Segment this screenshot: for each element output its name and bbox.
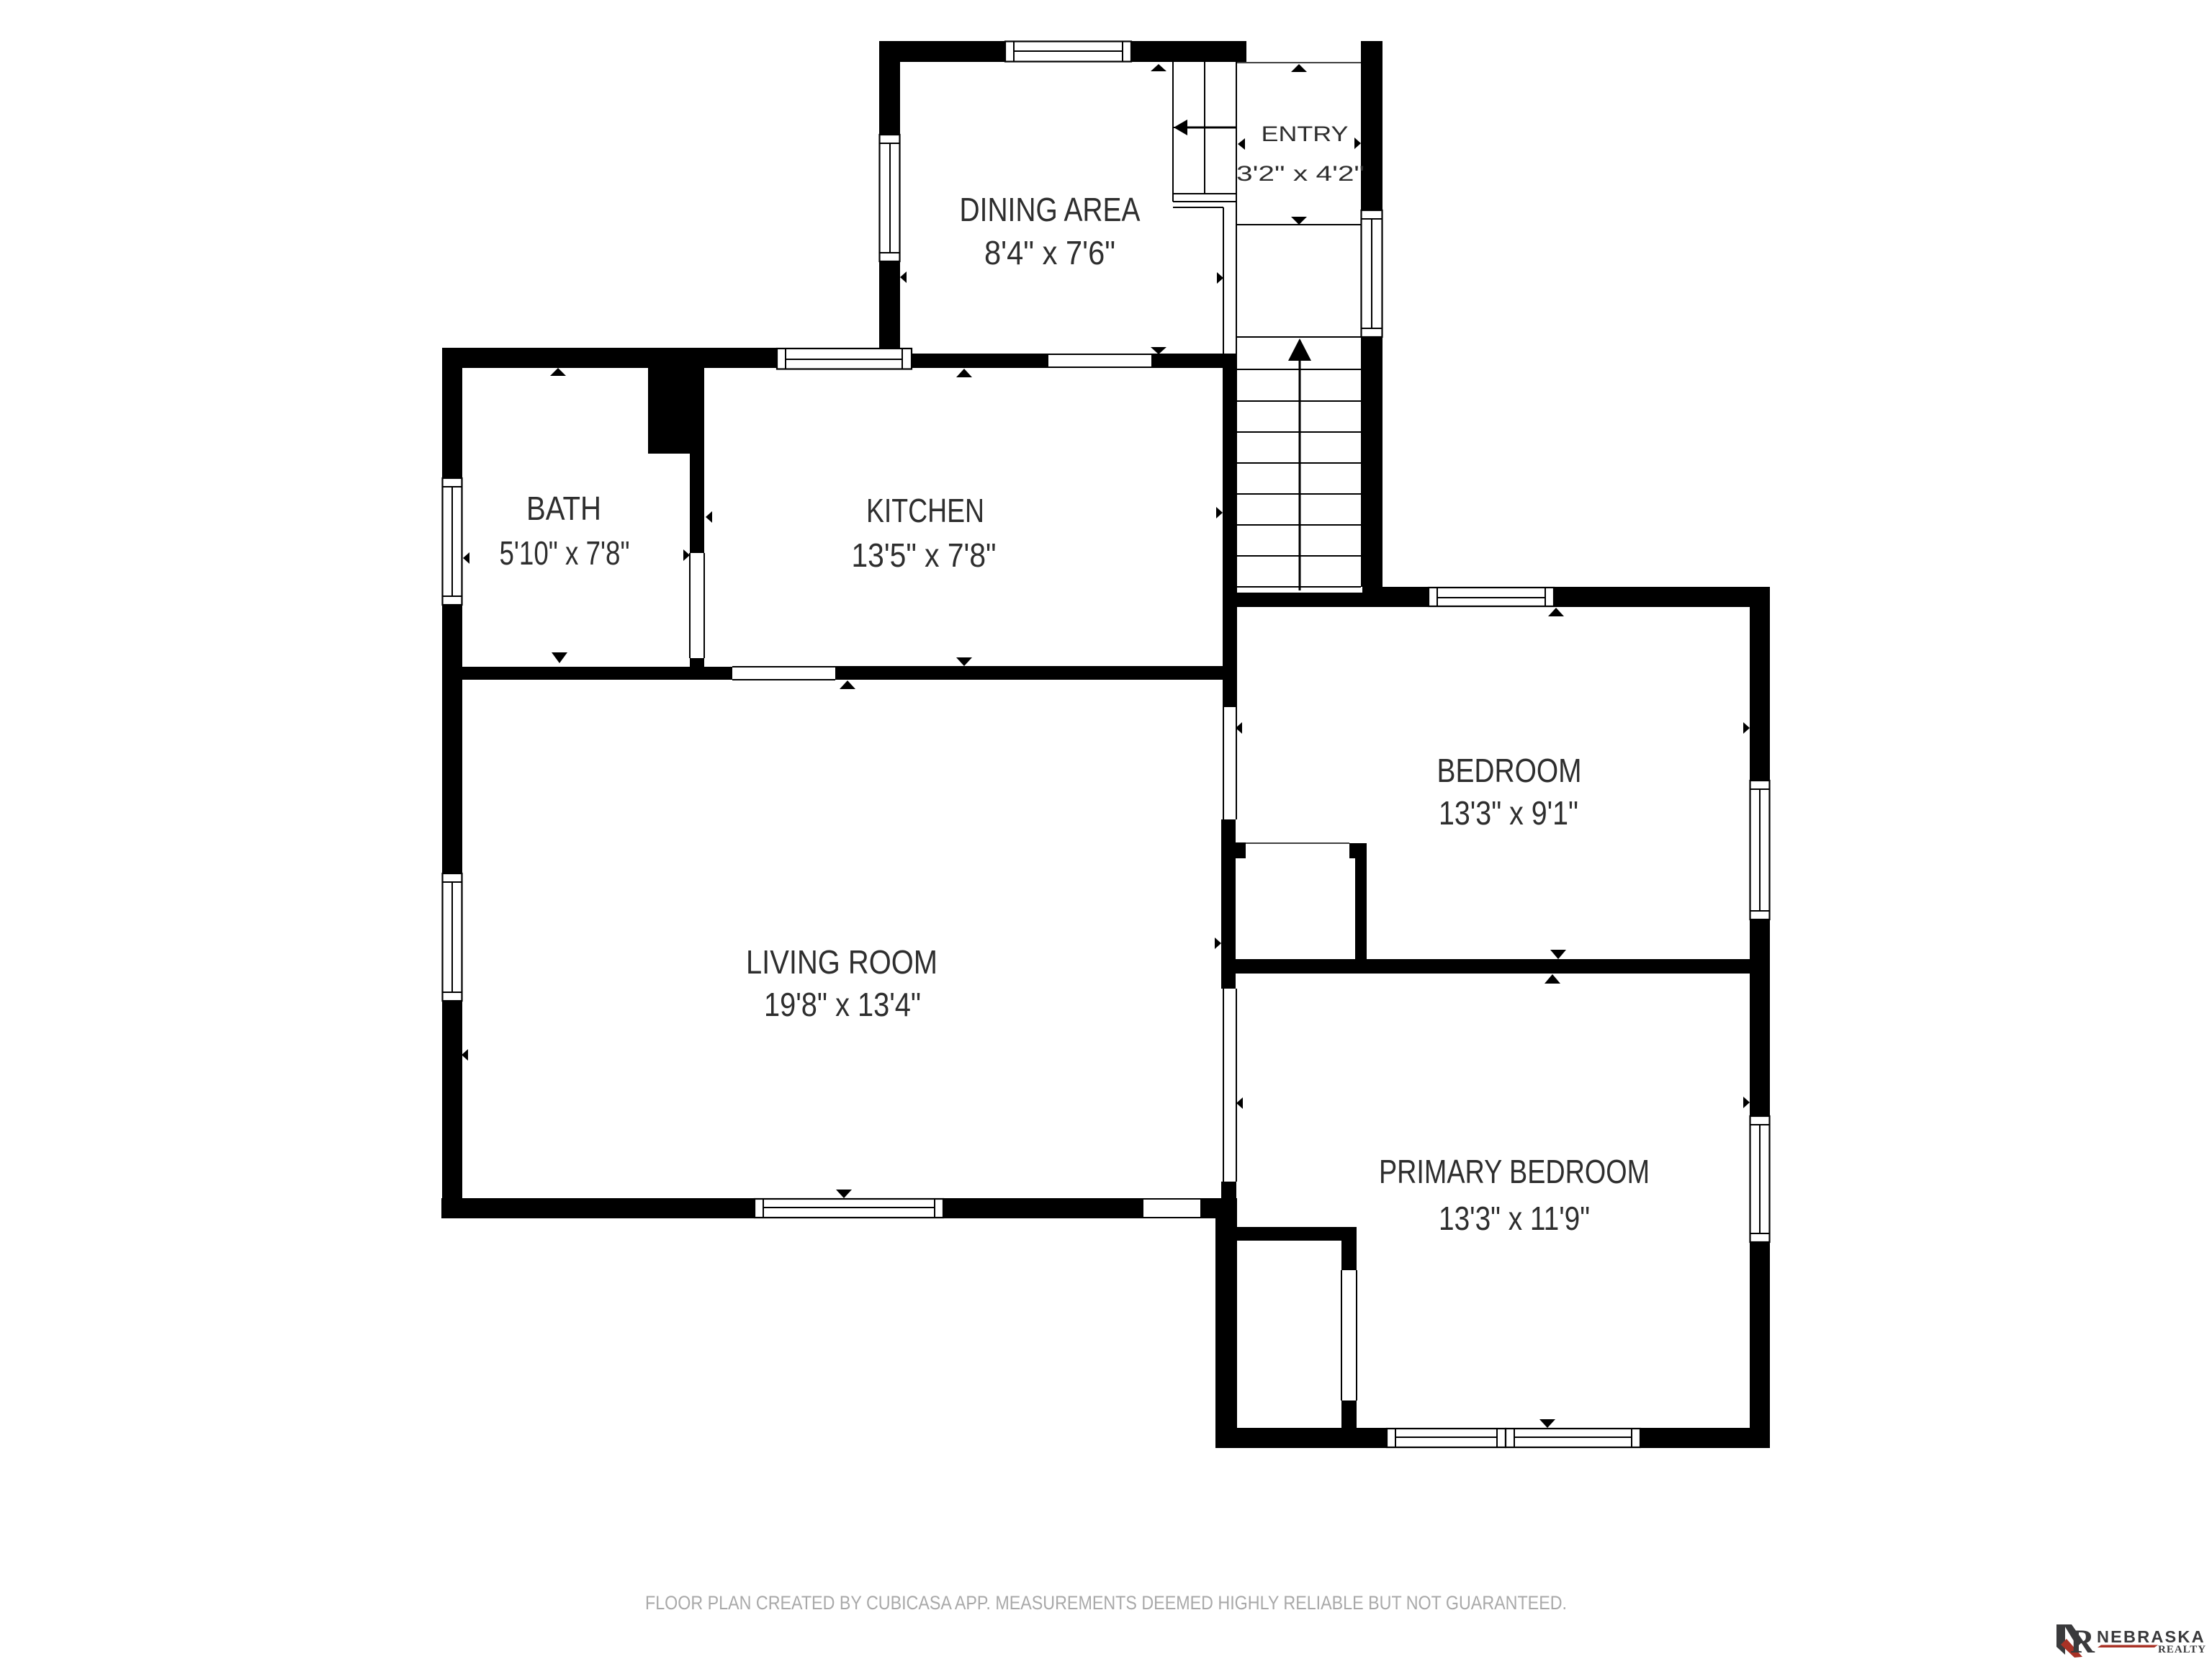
svg-text:13'3" x 9'1": 13'3" x 9'1" xyxy=(1439,794,1578,832)
svg-text:19'8" x 13'4": 19'8" x 13'4" xyxy=(764,986,921,1023)
svg-text:REALTY: REALTY xyxy=(2158,1644,2206,1655)
svg-text:KITCHEN: KITCHEN xyxy=(866,492,984,529)
svg-text:PRIMARY BEDROOM: PRIMARY BEDROOM xyxy=(1379,1153,1650,1190)
svg-text:FLOOR PLAN CREATED BY CUBICASA: FLOOR PLAN CREATED BY CUBICASA APP. MEAS… xyxy=(645,1592,1567,1614)
svg-text:13'5" x 7'8": 13'5" x 7'8" xyxy=(852,536,997,574)
svg-text:BEDROOM: BEDROOM xyxy=(1437,752,1582,789)
svg-text:ENTRY: ENTRY xyxy=(1262,122,1349,146)
svg-text:5'10" x 7'8": 5'10" x 7'8" xyxy=(500,534,630,572)
svg-text:R: R xyxy=(2070,1623,2095,1659)
svg-text:13'3" x 11'9": 13'3" x 11'9" xyxy=(1439,1200,1590,1237)
svg-text:DINING AREA: DINING AREA xyxy=(960,191,1141,228)
svg-text:LIVING ROOM: LIVING ROOM xyxy=(746,943,938,981)
svg-text:3'2" x 4'2": 3'2" x 4'2" xyxy=(1236,162,1364,186)
svg-text:BATH: BATH xyxy=(526,490,601,527)
svg-text:8'4" x 7'6": 8'4" x 7'6" xyxy=(984,234,1115,271)
